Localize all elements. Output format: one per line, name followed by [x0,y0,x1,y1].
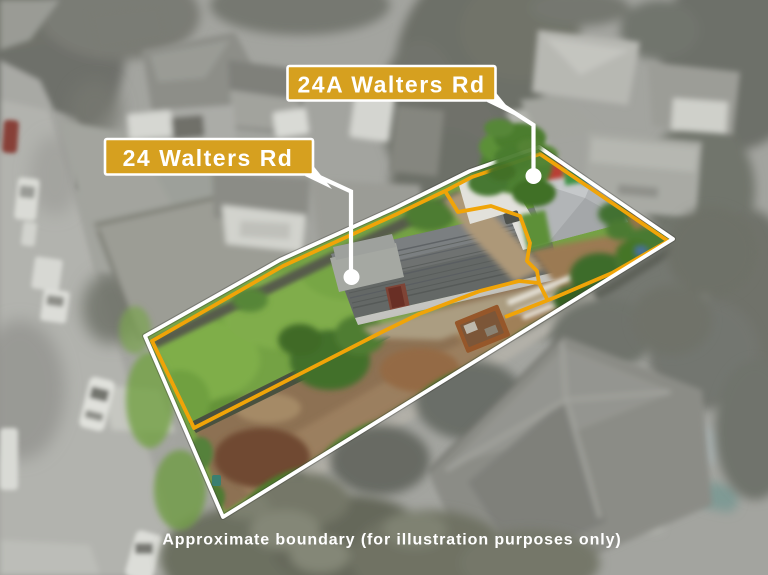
svg-text:Approximate boundary (for illu: Approximate boundary (for illustration p… [162,532,621,549]
svg-text:24A Walters Rd: 24A Walters Rd [297,72,485,98]
svg-text:24 Walters Rd: 24 Walters Rd [123,145,294,171]
